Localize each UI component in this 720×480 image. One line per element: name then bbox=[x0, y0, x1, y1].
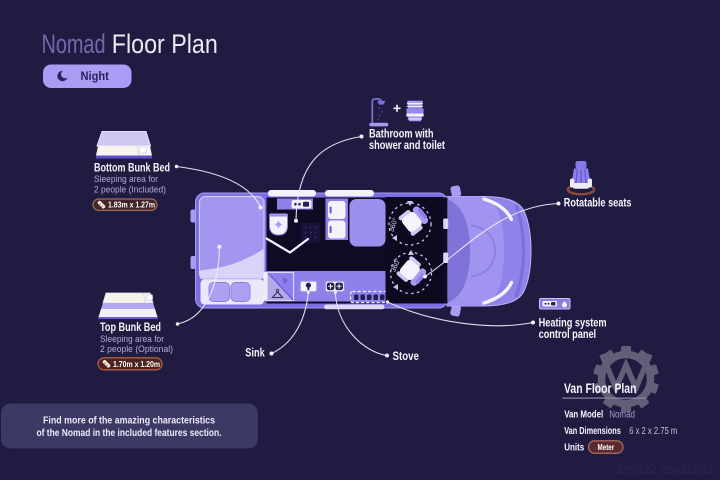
svg-text:Nomad: Nomad bbox=[42, 29, 106, 59]
svg-text:6 x 2 x 2.75 m: 6 x 2 x 2.75 m bbox=[629, 425, 677, 437]
svg-text:Find more of the amazing chara: Find more of the amazing characteristics bbox=[43, 415, 215, 426]
svg-text:Units: Units bbox=[564, 441, 584, 453]
svg-text:shower and toilet: shower and toilet bbox=[369, 140, 445, 152]
svg-text:Rotatable seats: Rotatable seats bbox=[564, 197, 632, 209]
svg-text:of the Nomad in the included f: of the Nomad in the included features se… bbox=[37, 428, 222, 439]
svg-text:1.83m x 1.27m: 1.83m x 1.27m bbox=[108, 200, 155, 209]
svg-text:Sink: Sink bbox=[245, 348, 265, 360]
svg-text:Floor Plan: Floor Plan bbox=[112, 29, 218, 59]
svg-text:Sleeping area for: Sleeping area for bbox=[100, 334, 164, 344]
svg-text:209322-20825552: 209322-20825552 bbox=[617, 463, 714, 477]
svg-text:Sleeping area for: Sleeping area for bbox=[94, 174, 158, 184]
svg-text:2 people (Optional): 2 people (Optional) bbox=[100, 344, 173, 354]
svg-text:Night: Night bbox=[81, 71, 109, 83]
svg-text:Bathroom with: Bathroom with bbox=[369, 128, 434, 140]
svg-text:Nomad: Nomad bbox=[609, 409, 635, 421]
svg-text:Meter: Meter bbox=[598, 443, 615, 452]
svg-text:control panel: control panel bbox=[539, 329, 597, 341]
svg-text:Van Floor Plan: Van Floor Plan bbox=[564, 381, 637, 396]
svg-text:Van Model: Van Model bbox=[564, 409, 603, 421]
svg-text:Bottom Bunk Bed: Bottom Bunk Bed bbox=[94, 162, 170, 174]
svg-text:Stove: Stove bbox=[393, 351, 419, 363]
svg-text:Top Bunk Bed: Top Bunk Bed bbox=[100, 322, 161, 334]
svg-text:1.70m x 1.20m: 1.70m x 1.20m bbox=[113, 360, 160, 369]
svg-text:Van Dimensions: Van Dimensions bbox=[564, 425, 621, 437]
svg-text:2 people (Included): 2 people (Included) bbox=[94, 184, 166, 194]
svg-text:Heating system: Heating system bbox=[539, 317, 607, 329]
